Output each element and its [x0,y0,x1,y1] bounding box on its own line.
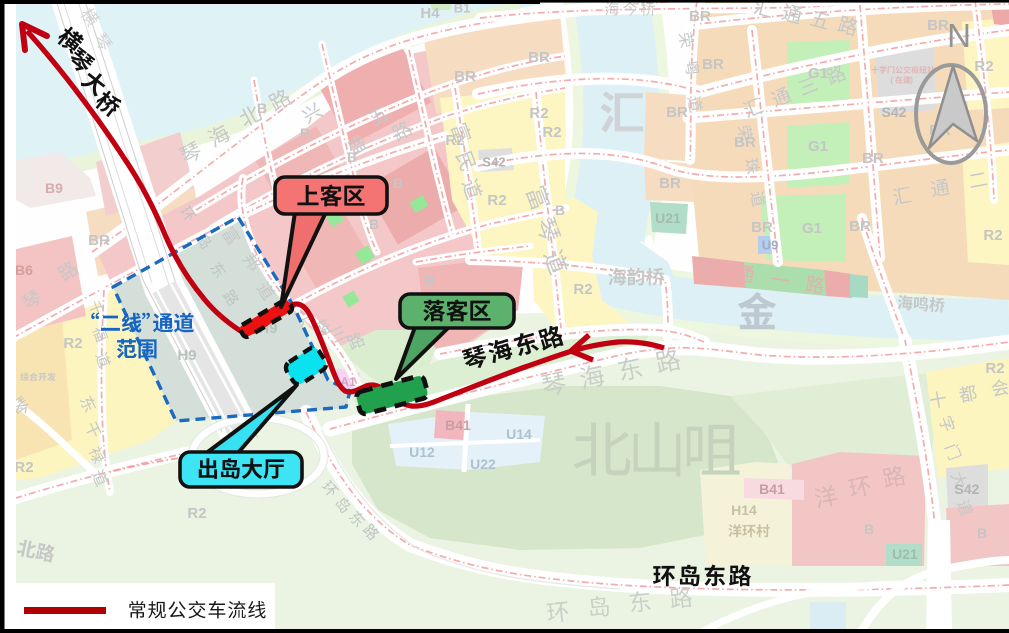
svg-text:N: N [947,17,971,54]
